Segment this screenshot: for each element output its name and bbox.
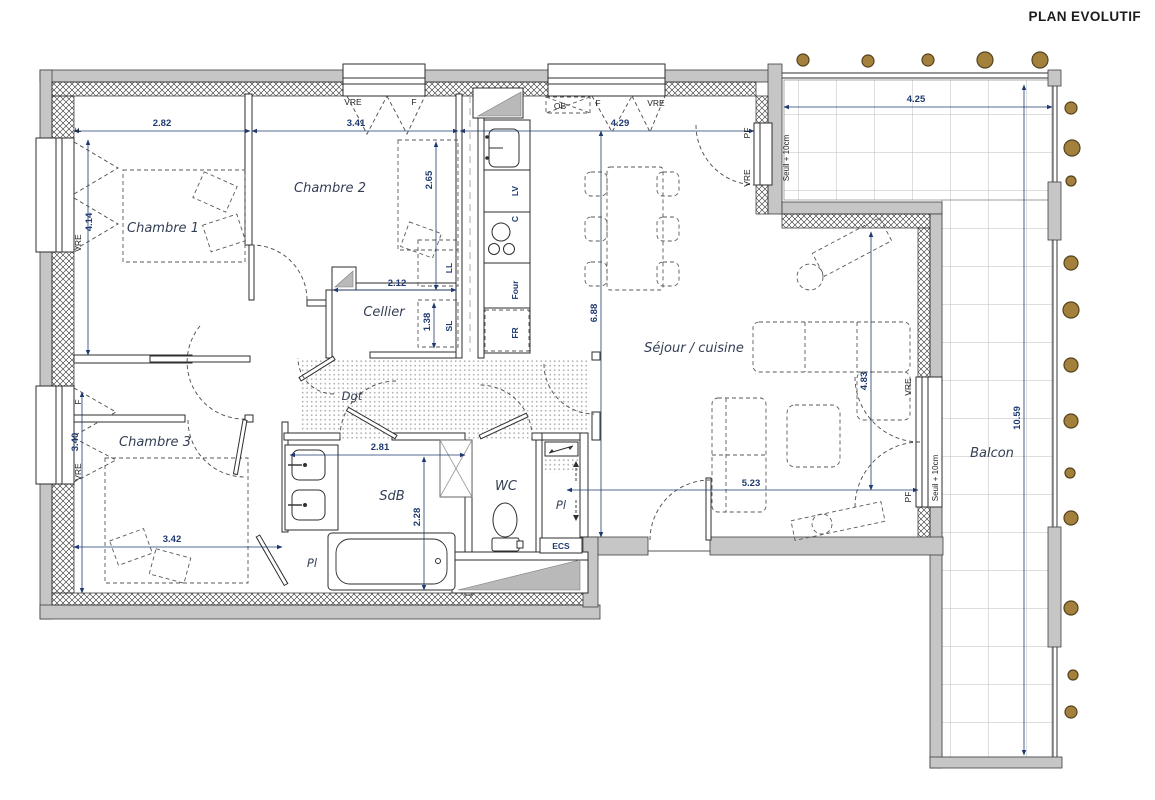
- tap-icon: [303, 503, 307, 507]
- dim-4-14: 4.14: [84, 212, 95, 231]
- floor-plan-canvas: PLAN EVOLUTIF Chambre 1 Chambre 2 Chambr…: [0, 0, 1155, 800]
- railing-post: [1048, 182, 1061, 240]
- wall-sdb-north-left: [284, 433, 340, 440]
- dim-3-40: 3.40: [70, 433, 81, 452]
- balcony-tiles-right: [942, 200, 1052, 757]
- room-label-chambre2: Chambre 2: [294, 181, 366, 196]
- railing-post: [1048, 527, 1061, 647]
- label-vre-sejour: VRE: [647, 98, 665, 108]
- planter-dot: [1064, 358, 1078, 372]
- label-vre-ch3: VRE: [73, 463, 83, 481]
- dim-4-29: 4.29: [611, 118, 630, 129]
- label-sl: SL: [444, 321, 454, 332]
- dim-6-88: 6.88: [589, 304, 600, 323]
- wall-cellier-south: [370, 352, 456, 358]
- room-label-cellier: Cellier: [363, 305, 406, 320]
- planter-dot: [1032, 52, 1048, 68]
- room-label-dgt: Dgt: [342, 389, 363, 403]
- label-vre-ch2: VRE: [344, 97, 362, 107]
- dim-2-81: 2.81: [371, 442, 390, 453]
- wall-sdb-north-right: [392, 433, 465, 440]
- bed-chambre3: [105, 458, 248, 583]
- planter-dot: [1065, 102, 1077, 114]
- label-pf-north: PF: [742, 128, 752, 139]
- planter-dot: [922, 54, 934, 66]
- door-entry: [648, 478, 711, 551]
- dim-2-82: 2.82: [153, 118, 172, 129]
- wall-kitchen-back: [478, 88, 484, 358]
- railing-post: [1048, 70, 1061, 86]
- door-chambre3: [188, 420, 247, 477]
- door-chambre1: [187, 326, 247, 419]
- door-balcony-east: [855, 377, 942, 507]
- dim-4-25: 4.25: [907, 94, 926, 105]
- label-vre-ch1: VRE: [73, 234, 83, 252]
- planter-dot: [1063, 302, 1079, 318]
- room-label-wc: WC: [495, 479, 518, 494]
- wall-wc-pl: [536, 440, 542, 553]
- desk-set: [797, 218, 892, 290]
- dim-5-23: 5.23: [742, 478, 761, 489]
- dim-2-65: 2.65: [424, 170, 435, 189]
- label-f-ch1: F: [73, 127, 83, 132]
- label-seuil-north: Seuil + 10cm: [782, 134, 791, 181]
- entry-wall-left: [590, 537, 648, 555]
- loveseat: [712, 398, 766, 512]
- wall-ch2-kitchen: [456, 94, 462, 358]
- south-wall-gray: [40, 605, 600, 619]
- wall-ch3-hall: [74, 415, 185, 422]
- planter-dot: [862, 55, 874, 67]
- dim-3-42: 3.42: [163, 534, 182, 545]
- label-seuil-east: Seuil + 10cm: [931, 454, 940, 501]
- label-pf-east: PF: [903, 492, 913, 503]
- room-label-balcon: Balcon: [970, 446, 1014, 461]
- page-title: PLAN EVOLUTIF: [1029, 9, 1141, 24]
- wall-pl-sejour: [580, 433, 588, 537]
- cellier-shaft: [332, 267, 356, 290]
- bathtub: [328, 533, 455, 590]
- door-chambre2: [249, 245, 307, 300]
- sejour-balcony-wall-hatch: [782, 214, 930, 228]
- bed-chambre1: [123, 170, 245, 262]
- sejour-balcony-wall-gray: [782, 202, 942, 214]
- entry-wall-right: [710, 537, 943, 555]
- room-label-pl-ecs: Pl: [556, 498, 567, 512]
- planter-dot: [1064, 511, 1078, 525]
- label-four: Four: [510, 280, 520, 300]
- wall-wc-jamb: [532, 433, 542, 440]
- dim-10-59: 10.59: [1012, 406, 1023, 430]
- south-wall-hatch: [52, 593, 590, 605]
- label-vre-east: VRE: [903, 378, 913, 396]
- planter-dot: [1064, 140, 1080, 156]
- label-ob: OB: [554, 101, 567, 111]
- planter-dot: [1065, 468, 1075, 478]
- label-vre-north: VRE: [742, 169, 752, 187]
- coffee-table: [787, 405, 840, 467]
- dim-2-12: 2.12: [388, 278, 407, 289]
- label-ecs: ECS: [552, 541, 570, 551]
- planter-dot: [1064, 601, 1078, 615]
- door-balcony-north: [696, 123, 772, 185]
- label-fr: FR: [510, 327, 520, 338]
- planter-dot: [1068, 670, 1078, 680]
- towel-radiator: [545, 442, 578, 456]
- door-placard-ch3: [256, 535, 287, 585]
- planter-dot: [1066, 176, 1076, 186]
- label-f-ch3: F: [73, 399, 83, 404]
- label-ll: LL: [444, 263, 454, 273]
- tap-icon: [485, 135, 489, 139]
- room-label-chambre1: Chambre 1: [127, 221, 199, 236]
- ch1-door-leaf-bar: [150, 356, 250, 362]
- x-shaft: [440, 440, 472, 497]
- kitchen: [484, 120, 530, 353]
- toilet: [492, 503, 523, 551]
- wall-ch1-ch2: [245, 94, 252, 245]
- balcony-south-wall: [930, 757, 1062, 768]
- room-label-sdb: SdB: [379, 489, 405, 504]
- wall-cellier-west: [326, 290, 332, 358]
- dining-set: [585, 167, 679, 290]
- console-table: [791, 502, 885, 541]
- south-shaft: [452, 560, 588, 593]
- label-c: C: [510, 216, 520, 222]
- label-lv: LV: [510, 186, 520, 197]
- room-label-pl-sdb: Pl: [307, 556, 318, 570]
- balcony-west-wall: [930, 550, 942, 768]
- planter-dot: [1065, 706, 1077, 718]
- planter-dot: [797, 54, 809, 66]
- planter-dot: [977, 52, 993, 68]
- floor-plan-svg: PLAN EVOLUTIF Chambre 1 Chambre 2 Chambr…: [0, 0, 1155, 800]
- dim-2-28: 2.28: [412, 508, 423, 527]
- planter-dot: [1064, 256, 1078, 270]
- label-f-ch2: F: [411, 97, 416, 107]
- wall-dgt-sejour: [592, 412, 600, 440]
- planter-dot: [1064, 414, 1078, 428]
- dim-3-41: 3.41: [347, 118, 366, 129]
- tap-icon: [485, 156, 489, 160]
- dim-1-38: 1.38: [422, 313, 433, 332]
- label-f-sejour: F: [595, 98, 600, 108]
- room-label-chambre3: Chambre 3: [119, 435, 191, 450]
- room-label-sejour: Séjour / cuisine: [644, 341, 744, 356]
- tap-icon: [303, 463, 307, 467]
- kitchen-shaft: [473, 88, 523, 118]
- dim-4-83: 4.83: [859, 372, 870, 391]
- wall-dgt-sejour-jamb: [592, 352, 600, 360]
